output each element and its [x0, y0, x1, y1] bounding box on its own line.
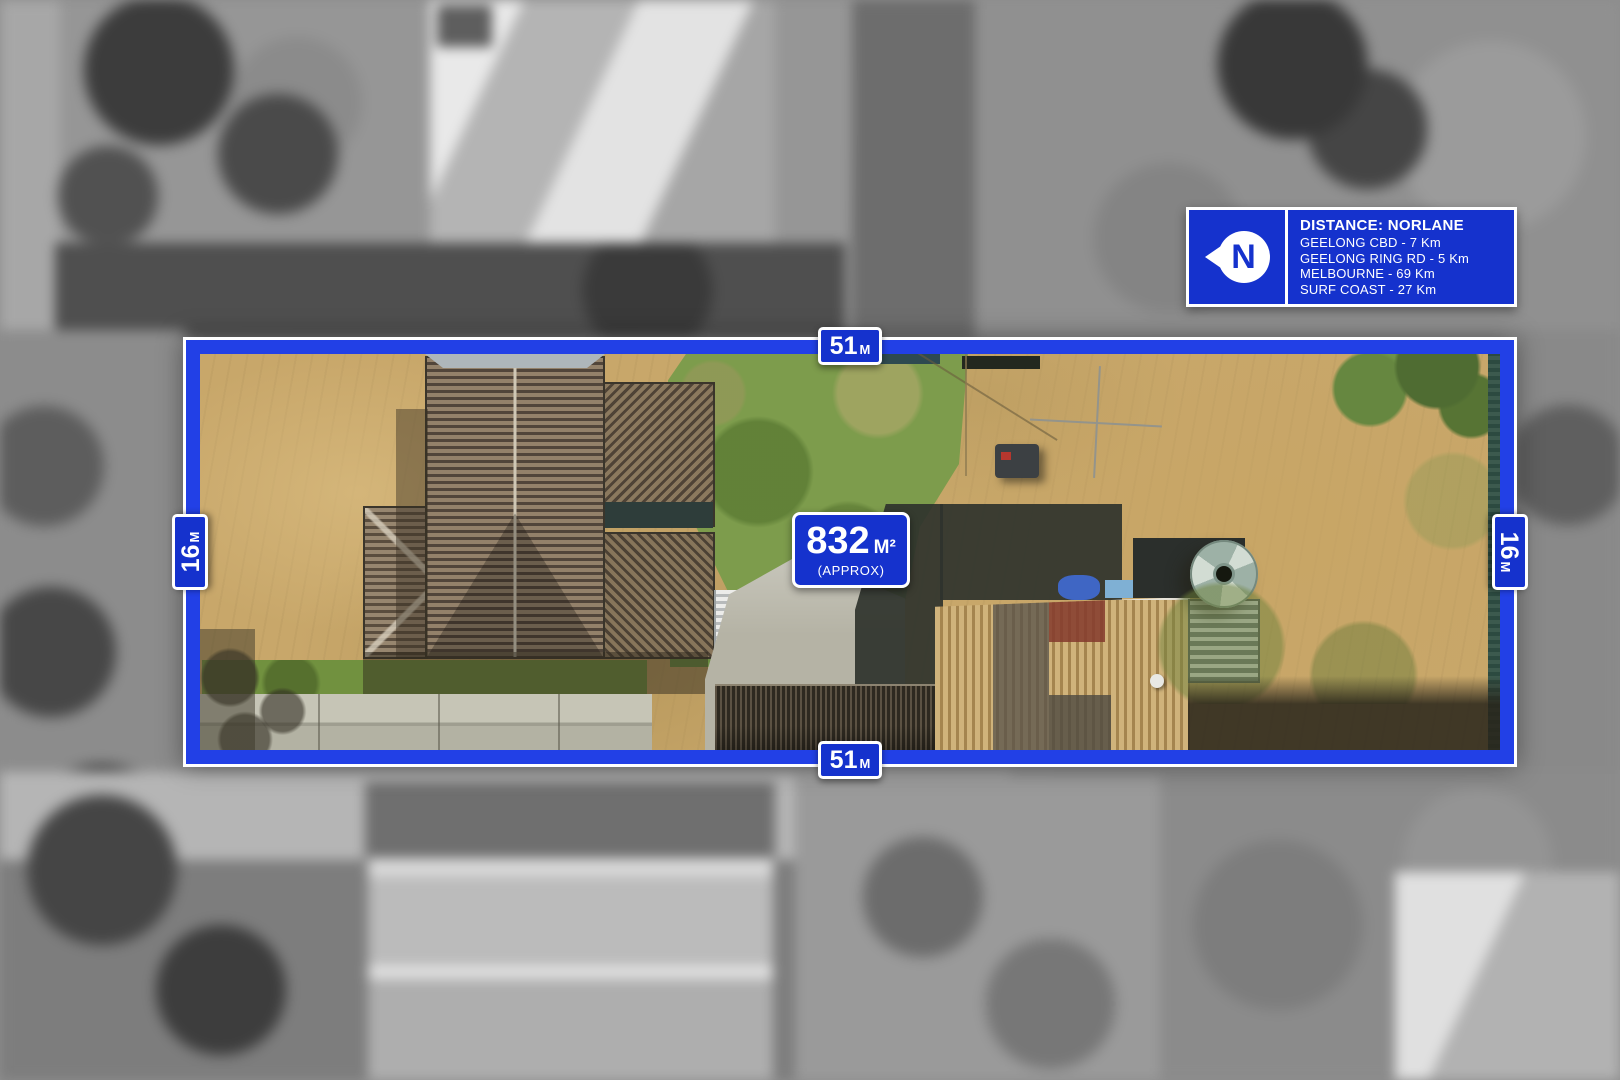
- house-front-shadow: [363, 652, 708, 694]
- dimension-label-left: 16 M: [172, 514, 208, 590]
- distance-item: GEELONG RING RD - 5 Km: [1300, 251, 1508, 266]
- dimension-value: 16: [1496, 532, 1521, 560]
- clothesline: [1027, 363, 1165, 482]
- background-tree-top-right: [1180, 0, 1430, 215]
- mower: [995, 444, 1039, 478]
- house-roof-ridge-cap: [425, 354, 605, 368]
- distance-item: GEELONG CBD - 7 Km: [1300, 235, 1508, 250]
- north-indicator: N: [1189, 210, 1288, 304]
- crates: [962, 356, 1040, 369]
- dimension-unit: M: [187, 532, 202, 543]
- background-roof-patch: [437, 5, 492, 47]
- background-trees-top-left: [40, 0, 380, 280]
- area-qualifier: (APPROX): [818, 563, 885, 578]
- shadow-left: [200, 629, 255, 750]
- real-estate-aerial-image: 51 M 51 M 16 M 16 M 832 M² (APPROX) N DI…: [0, 0, 1620, 1080]
- background-roof-bottom-right: [1395, 872, 1620, 1080]
- dimension-value: 51: [830, 334, 858, 359]
- distance-item: MELBOURNE - 69 Km: [1300, 266, 1508, 281]
- area-line: 832 M²: [806, 522, 896, 560]
- dimension-label-bottom: 51 M: [818, 741, 882, 779]
- shed-dark-patch: [1049, 695, 1111, 750]
- veranda-shadow: [605, 502, 713, 528]
- fence-line: [965, 354, 967, 476]
- shed-rust-patch: [1049, 600, 1105, 642]
- area-value: 832: [806, 522, 869, 560]
- north-letter: N: [1231, 240, 1256, 274]
- distance-item: SURF COAST - 27 Km: [1300, 282, 1508, 297]
- background-house-yard-bottom: [365, 782, 775, 862]
- house-roof-main: [425, 356, 605, 659]
- area-unit: M²: [874, 537, 896, 559]
- background-right-strip: [1515, 330, 1620, 780]
- background-house-roof-bottom: [368, 858, 773, 1080]
- dimension-unit: M: [859, 756, 870, 771]
- background-driveway-top: [852, 0, 977, 340]
- dimension-value: 16: [179, 545, 204, 573]
- dimension-value: 51: [830, 748, 858, 773]
- dimension-unit: M: [1498, 561, 1513, 572]
- area-label: 832 M² (APPROX): [792, 512, 910, 588]
- shadow-bottom-right: [1188, 676, 1500, 750]
- shed-weathered-patch: [993, 600, 1049, 750]
- grass-patches: [1150, 414, 1500, 704]
- blue-box: [1105, 580, 1133, 598]
- distance-title: DISTANCE: NORLANE: [1300, 217, 1508, 234]
- house-shadow-left: [396, 409, 428, 659]
- background-street-top: [55, 243, 845, 338]
- background-trees-bottom-left: [0, 780, 340, 1080]
- background-building-bottom: [795, 775, 1160, 1080]
- north-icon: N: [1218, 231, 1270, 283]
- dimension-unit: M: [859, 342, 870, 357]
- house-roof-right-lower: [603, 532, 715, 659]
- dimension-label-top: 51 M: [818, 327, 882, 365]
- blue-tarp: [1058, 575, 1100, 600]
- dimension-label-right: 16 M: [1492, 514, 1528, 590]
- distance-list: DISTANCE: NORLANE GEELONG CBD - 7 Km GEE…: [1288, 210, 1514, 304]
- distance-panel: N DISTANCE: NORLANE GEELONG CBD - 7 Km G…: [1186, 207, 1517, 307]
